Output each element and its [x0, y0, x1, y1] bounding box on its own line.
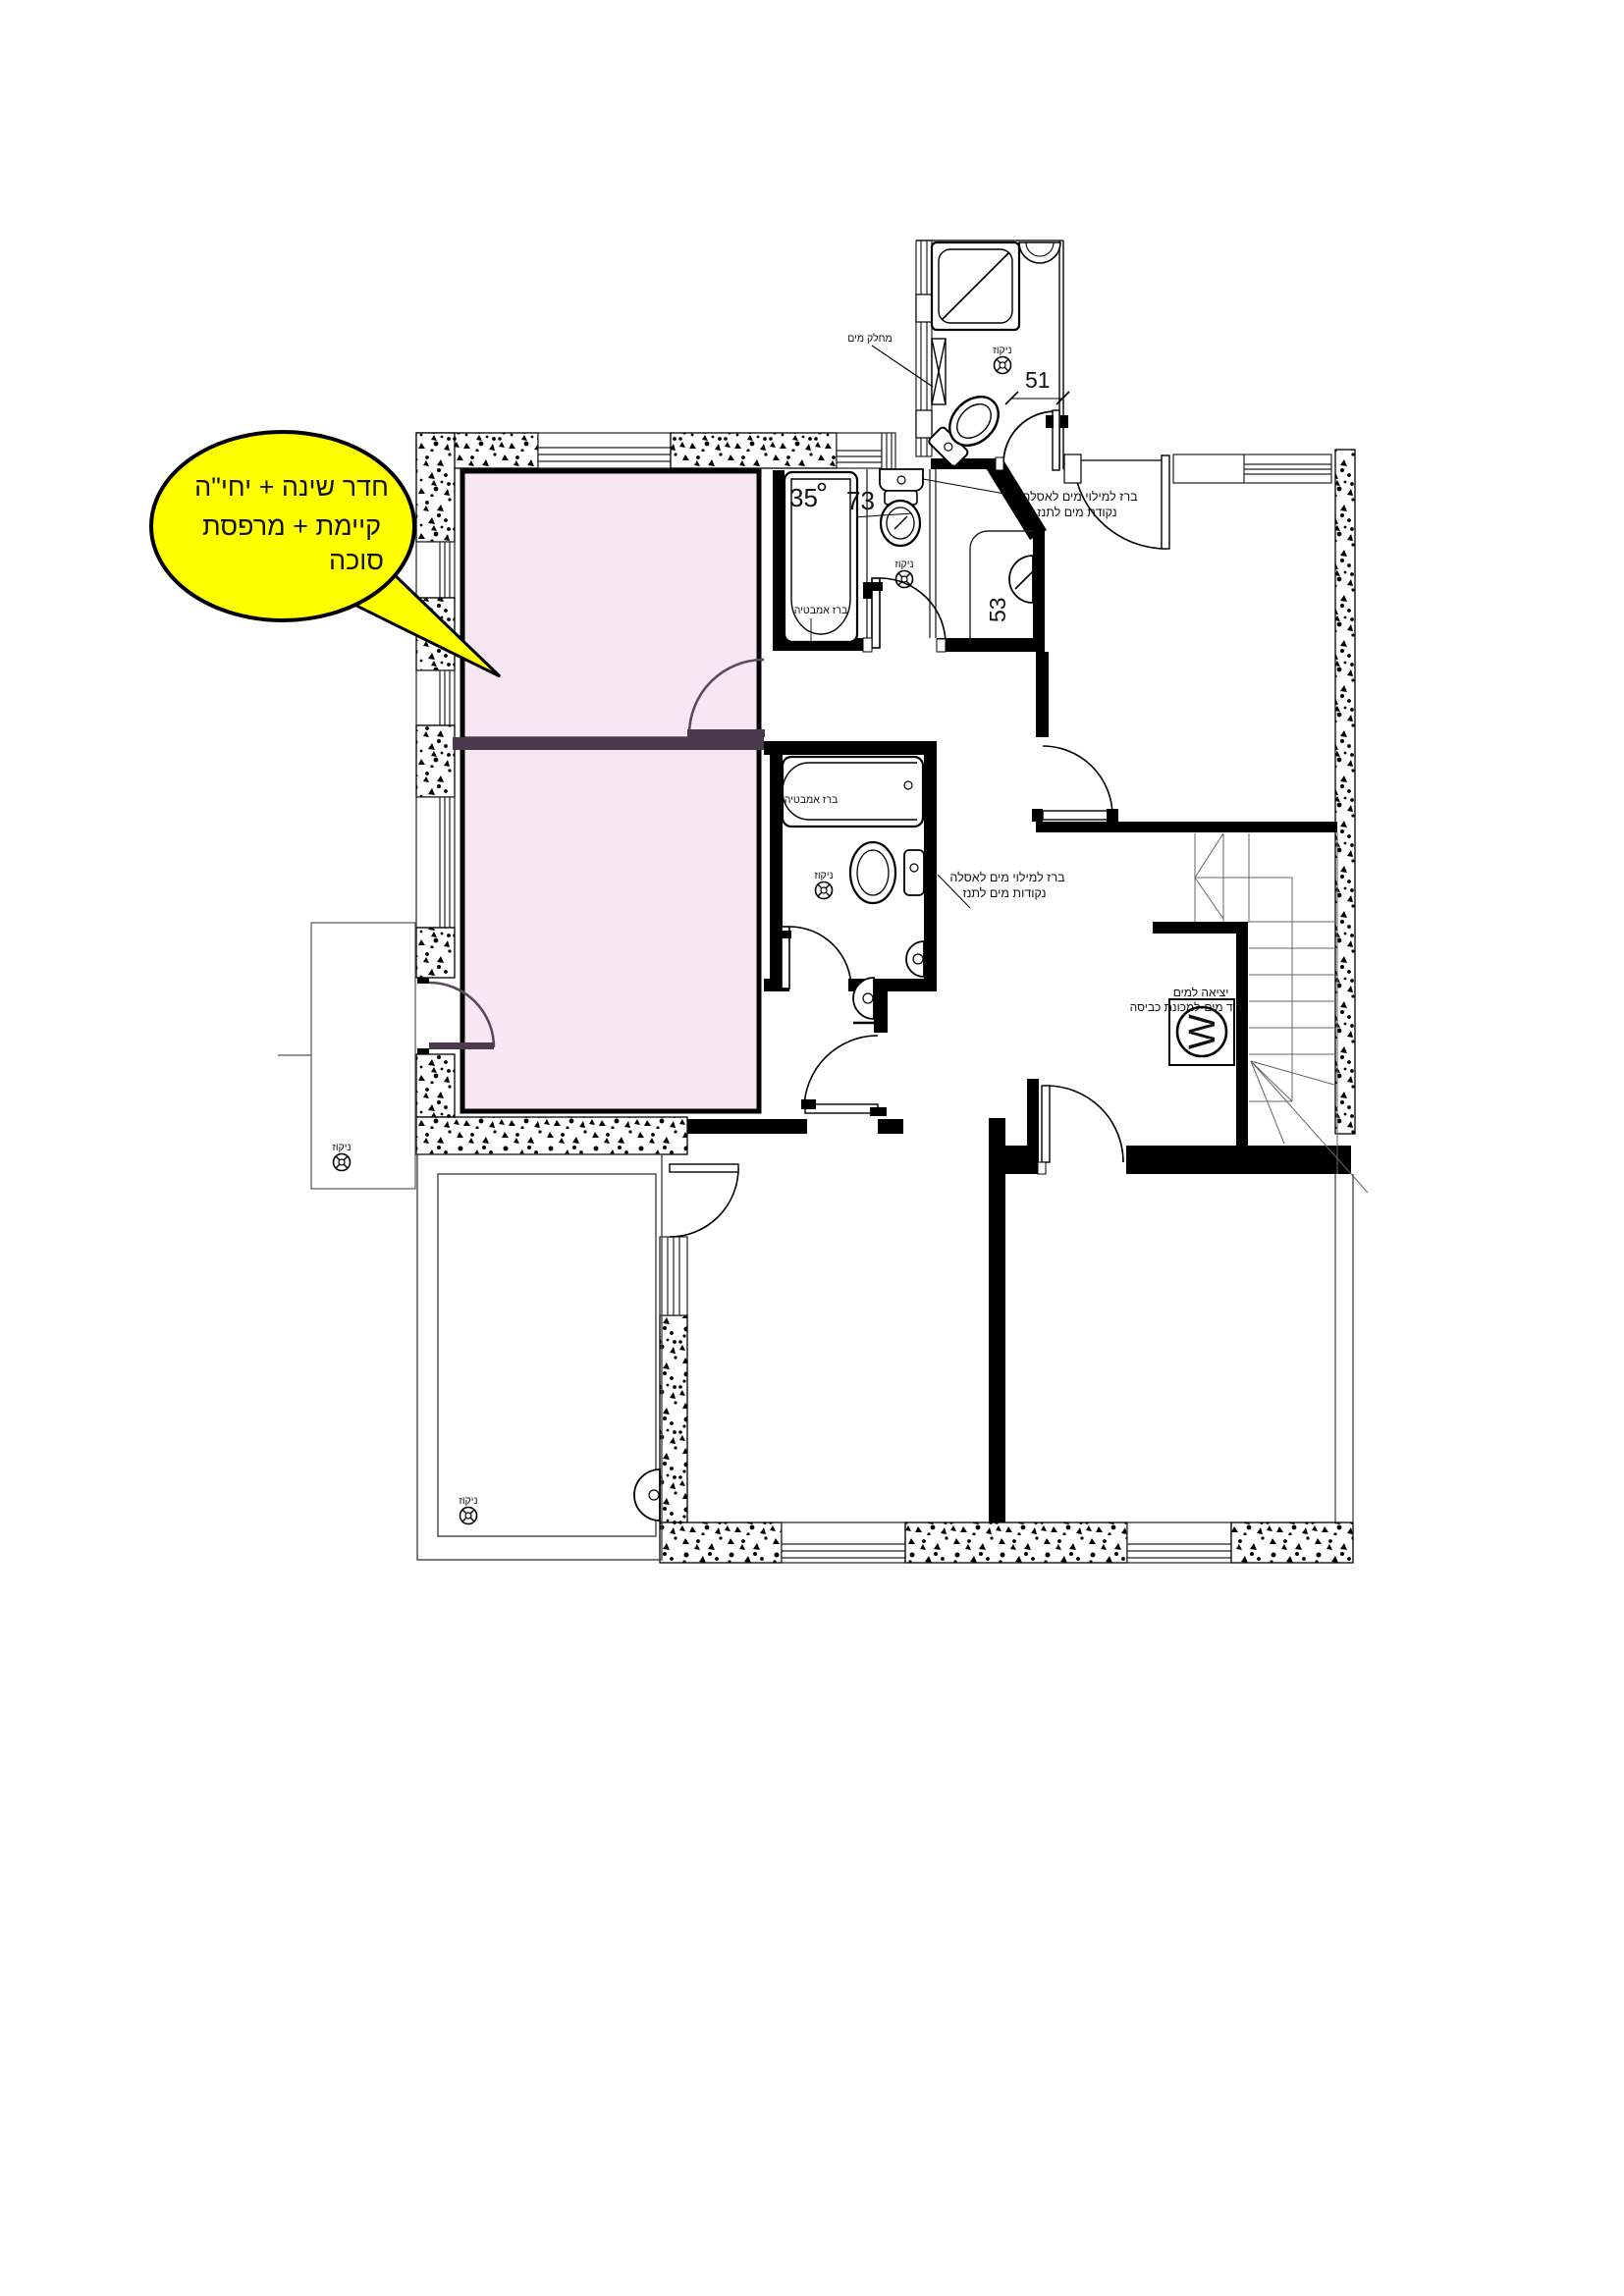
svg-text:חדר שינה + יחי"ה: חדר שינה + יחי"ה — [194, 472, 389, 502]
svg-text:דוד מים-למכונת כביסה: דוד מים-למכונת כביסה — [1130, 1000, 1243, 1014]
svg-text:ברז אמבטיה: ברז אמבטיה — [794, 605, 848, 616]
svg-text:ניקוז: ניקוז — [332, 1142, 351, 1153]
svg-text:ברז למילוי מים לאסלה: ברז למילוי מים לאסלה — [949, 871, 1065, 884]
svg-text:35: 35 — [789, 483, 818, 512]
svg-text:ניקוז: ניקוז — [459, 1495, 477, 1507]
svg-text:53: 53 — [985, 597, 1010, 622]
svg-text:73: 73 — [846, 486, 875, 515]
svg-text:יציאה למים: יציאה למים — [1173, 986, 1229, 999]
svg-text:סוכה: סוכה — [329, 546, 384, 575]
svg-text:ניקוז: ניקוז — [993, 345, 1011, 356]
svg-text:מחלק מים: מחלק מים — [847, 333, 893, 345]
svg-text:נקודות מים לתנז: נקודות מים לתנז — [963, 886, 1047, 900]
svg-text:נקודת מים לתנז: נקודת מים לתנז — [1037, 506, 1116, 519]
svg-text:ניקוז: ניקוז — [894, 559, 913, 570]
svg-text:ברז אמבטיה: ברז אמבטיה — [785, 794, 839, 806]
svg-text:51: 51 — [1025, 367, 1051, 393]
svg-text:W: W — [1182, 1014, 1223, 1049]
svg-text:ניקוז: ניקוז — [814, 870, 833, 881]
svg-text:קיימת + מרפסת: קיימת + מרפסת — [202, 511, 381, 541]
